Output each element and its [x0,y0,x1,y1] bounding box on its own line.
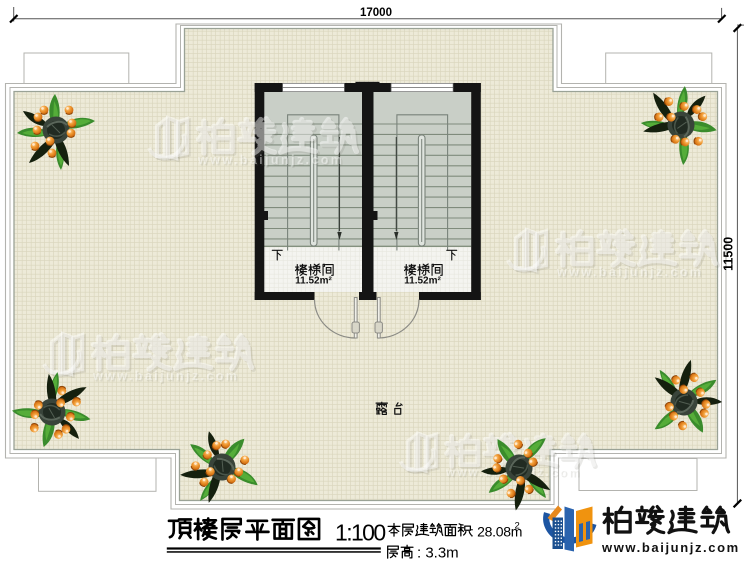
svg-text:11.52m²: 11.52m² [404,276,441,287]
svg-text:www.baijunjz.com: www.baijunjz.com [556,265,703,279]
svg-text:2: 2 [515,521,520,532]
svg-text:www.baijunjz.com: www.baijunjz.com [601,540,740,555]
svg-text:1:100: 1:100 [335,520,385,546]
svg-text:www.baijunjz.com: www.baijunjz.com [92,369,239,383]
svg-text:11.52m²: 11.52m² [295,276,332,287]
svg-text:17000: 17000 [360,7,392,19]
svg-text:www.baijunjz.com: www.baijunjz.com [197,153,344,167]
svg-text:11500: 11500 [722,237,736,271]
svg-text:: 3.3m: : 3.3m [417,545,459,562]
